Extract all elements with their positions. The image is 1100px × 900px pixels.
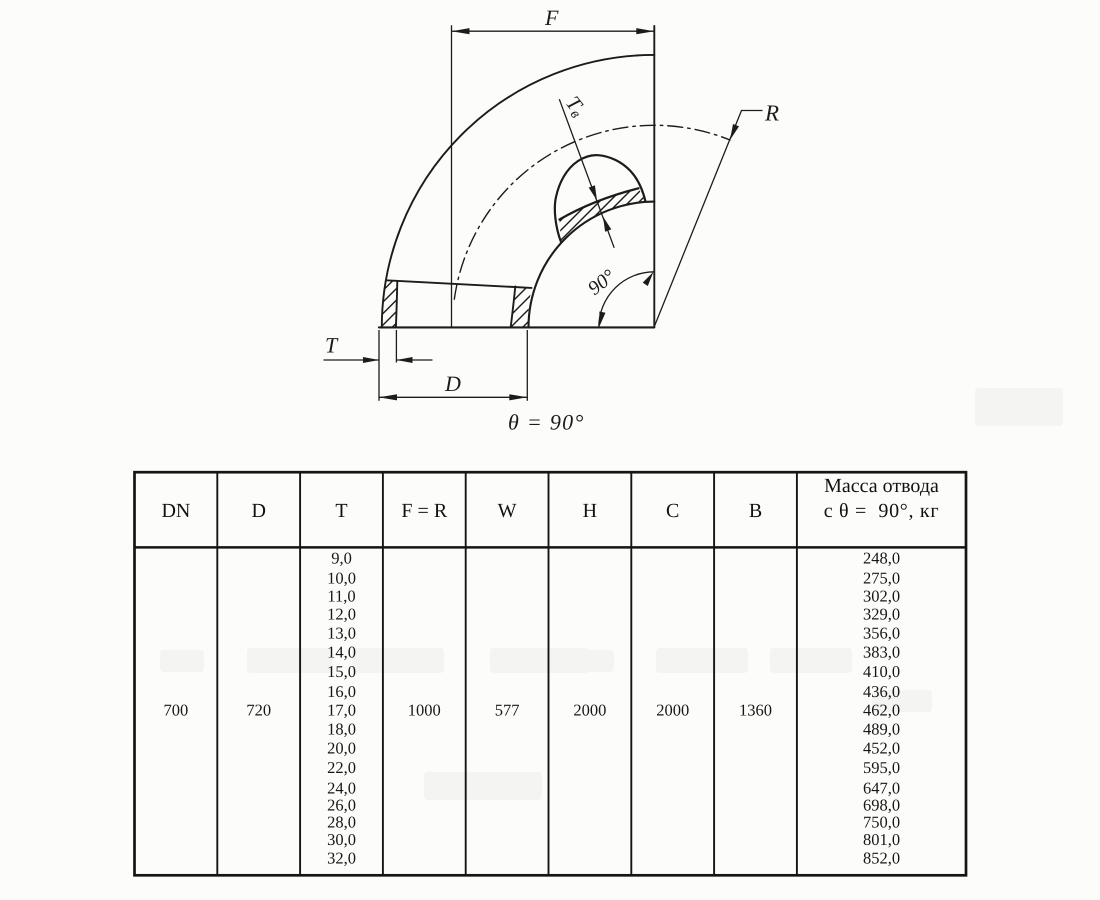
svg-text:329,0: 329,0 <box>863 605 900 624</box>
svg-text:10,0: 10,0 <box>327 569 356 588</box>
svg-text:16,0: 16,0 <box>327 682 356 701</box>
svg-text:H: H <box>583 500 597 522</box>
svg-text:302,0: 302,0 <box>863 587 900 606</box>
svg-text:T: T <box>335 500 347 522</box>
svg-text:700: 700 <box>164 701 189 720</box>
svg-text:15,0: 15,0 <box>327 662 356 681</box>
svg-text:26,0: 26,0 <box>327 796 356 815</box>
svg-text:θ = 90°: θ = 90° <box>508 410 585 435</box>
svg-text:1360: 1360 <box>739 701 772 720</box>
svg-text:R: R <box>764 101 779 126</box>
svg-text:577: 577 <box>495 701 520 720</box>
svg-text:W: W <box>498 500 517 522</box>
svg-text:с θ = 90°, кг: с θ = 90°, кг <box>824 500 939 522</box>
svg-text:11,0: 11,0 <box>327 587 355 606</box>
svg-text:452,0: 452,0 <box>863 739 900 758</box>
svg-text:F = R: F = R <box>401 500 447 522</box>
svg-text:22,0: 22,0 <box>327 758 356 777</box>
svg-text:275,0: 275,0 <box>863 569 900 588</box>
svg-text:28,0: 28,0 <box>327 813 356 832</box>
svg-text:720: 720 <box>246 701 271 720</box>
svg-text:436,0: 436,0 <box>863 682 900 701</box>
svg-text:20,0: 20,0 <box>327 739 356 758</box>
svg-text:Масса отвода: Масса отвода <box>824 475 939 497</box>
svg-text:462,0: 462,0 <box>863 701 900 720</box>
svg-text:9,0: 9,0 <box>331 549 352 568</box>
svg-text:D: D <box>444 371 461 396</box>
svg-text:12,0: 12,0 <box>327 605 356 624</box>
svg-text:F: F <box>544 5 559 30</box>
svg-text:C: C <box>666 500 679 522</box>
svg-text:32,0: 32,0 <box>327 849 356 868</box>
svg-text:2000: 2000 <box>656 701 689 720</box>
svg-text:B: B <box>749 500 762 522</box>
svg-text:14,0: 14,0 <box>327 643 356 662</box>
svg-text:489,0: 489,0 <box>863 720 900 739</box>
svg-text:410,0: 410,0 <box>863 662 900 681</box>
svg-text:18,0: 18,0 <box>327 720 356 739</box>
svg-text:852,0: 852,0 <box>863 849 900 868</box>
svg-text:2000: 2000 <box>573 701 606 720</box>
svg-text:595,0: 595,0 <box>863 758 900 777</box>
svg-text:248,0: 248,0 <box>863 549 900 568</box>
svg-text:801,0: 801,0 <box>863 830 900 849</box>
svg-text:DN: DN <box>161 500 190 522</box>
svg-text:D: D <box>251 500 265 522</box>
svg-text:30,0: 30,0 <box>327 830 356 849</box>
svg-text:17,0: 17,0 <box>327 701 356 720</box>
svg-text:698,0: 698,0 <box>863 796 900 815</box>
svg-text:750,0: 750,0 <box>863 813 900 832</box>
svg-text:T: T <box>325 333 339 358</box>
svg-text:383,0: 383,0 <box>863 643 900 662</box>
svg-text:356,0: 356,0 <box>863 624 900 643</box>
svg-text:1000: 1000 <box>408 701 441 720</box>
svg-text:13,0: 13,0 <box>327 624 356 643</box>
